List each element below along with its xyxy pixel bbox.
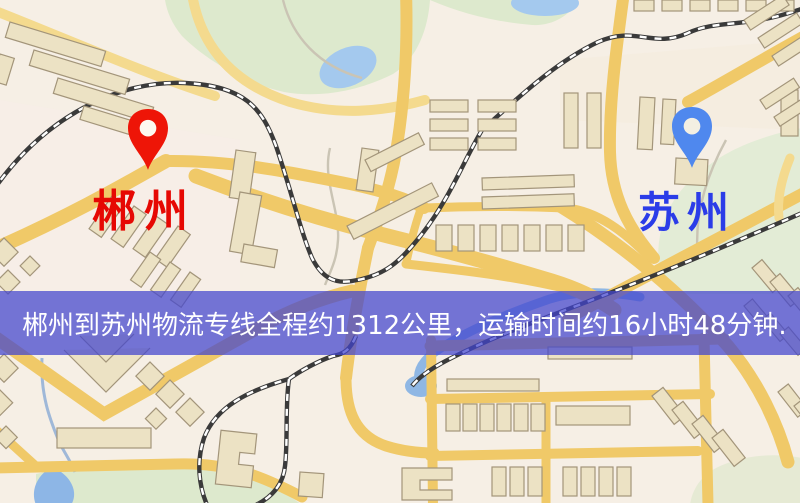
map-canvas[interactable]: 郴州 苏州 郴州到苏州物流专线全程约1312公里，运输时间约16小时48分钟. (0, 0, 800, 503)
route-info-banner: 郴州到苏州物流专线全程约1312公里，运输时间约16小时48分钟. (0, 291, 800, 355)
origin-marker[interactable] (123, 106, 173, 172)
route-info-text: 郴州到苏州物流专线全程约1312公里，运输时间约16小时48分钟. (22, 305, 787, 342)
location-pin-icon (672, 107, 712, 168)
pin-hole (684, 118, 701, 135)
destination-city-label: 苏州 (638, 179, 736, 240)
origin-city-label: 郴州 (92, 175, 196, 239)
pin-hole (140, 120, 157, 137)
destination-marker[interactable] (667, 104, 717, 170)
location-pin-icon (128, 109, 168, 170)
street-map (0, 0, 800, 503)
